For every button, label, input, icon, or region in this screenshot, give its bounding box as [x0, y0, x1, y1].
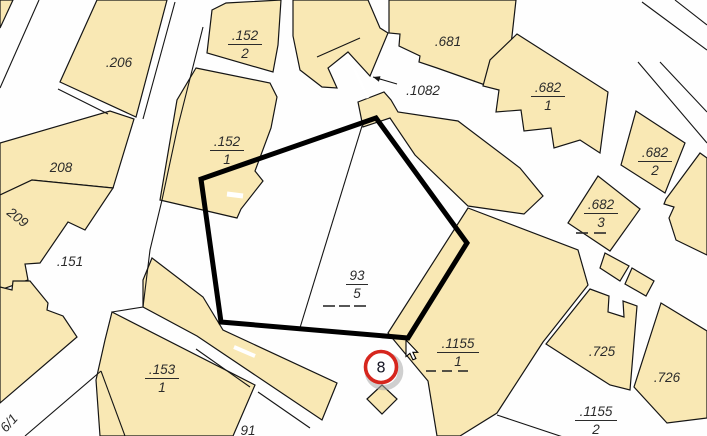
- svg-text:.152: .152: [232, 28, 259, 43]
- svg-text:.682: .682: [642, 145, 669, 160]
- parcel-left-wedge[interactable]: [0, 281, 77, 403]
- parcel-label-725: .725: [589, 344, 616, 359]
- parcel-mid-small-1[interactable]: [600, 253, 629, 281]
- svg-text:2: 2: [650, 163, 659, 178]
- parcel-corner-sliver[interactable]: [0, 0, 13, 28]
- parcel-label-1155-2: .11552: [575, 404, 617, 436]
- boundary-line: [497, 415, 563, 436]
- svg-text:1: 1: [544, 98, 552, 113]
- map-marker-8[interactable]: 8: [366, 352, 401, 388]
- parcel-mid-small-2[interactable]: [625, 268, 654, 296]
- svg-text:2: 2: [240, 46, 249, 61]
- parcel-label-93-5: 935: [346, 268, 368, 301]
- cadastral-map-viewport[interactable]: .206.681.1082208.151.725.726912096/1.152…: [0, 0, 707, 436]
- parcel-208[interactable]: [0, 111, 134, 195]
- parcel-726[interactable]: [634, 303, 707, 423]
- cadastral-map-svg: .206.681.1082208.151.725.726912096/1.152…: [0, 0, 707, 436]
- svg-text:1: 1: [158, 380, 166, 395]
- road-slot: [227, 194, 243, 196]
- svg-text:.153: .153: [149, 362, 176, 377]
- svg-text:8: 8: [376, 358, 386, 376]
- boundary-line: [675, 0, 707, 25]
- svg-text:1: 1: [223, 152, 231, 167]
- svg-text:1: 1: [454, 354, 462, 369]
- parcel-label-726: .726: [654, 370, 681, 385]
- boundary-line: [25, 371, 101, 436]
- parcel-209[interactable]: [0, 180, 113, 290]
- label-leader-arrowhead-icon: [373, 76, 381, 81]
- boundary-line: [642, 2, 707, 50]
- parcel-label-61: 6/1: [0, 411, 21, 435]
- svg-text:5: 5: [353, 286, 361, 301]
- boundary-line: [660, 62, 707, 112]
- svg-text:.682: .682: [535, 80, 562, 95]
- svg-text:93: 93: [349, 268, 365, 283]
- svg-text:.1155: .1155: [580, 404, 613, 419]
- parcel-top-mass[interactable]: [293, 0, 388, 88]
- parcel-label-208: 208: [49, 160, 73, 175]
- svg-text:2: 2: [591, 422, 600, 436]
- parcel-label-681: .681: [435, 34, 461, 49]
- svg-text:.682: .682: [588, 197, 615, 212]
- parcel-label-91: 91: [240, 423, 255, 436]
- parcel-label-151: .151: [57, 254, 83, 269]
- svg-text:.1155: .1155: [442, 336, 475, 351]
- parcel-label-206: .206: [106, 55, 133, 70]
- svg-text:.152: .152: [214, 134, 241, 149]
- svg-text:3: 3: [597, 215, 605, 230]
- parcel-label-1082: .1082: [406, 83, 440, 98]
